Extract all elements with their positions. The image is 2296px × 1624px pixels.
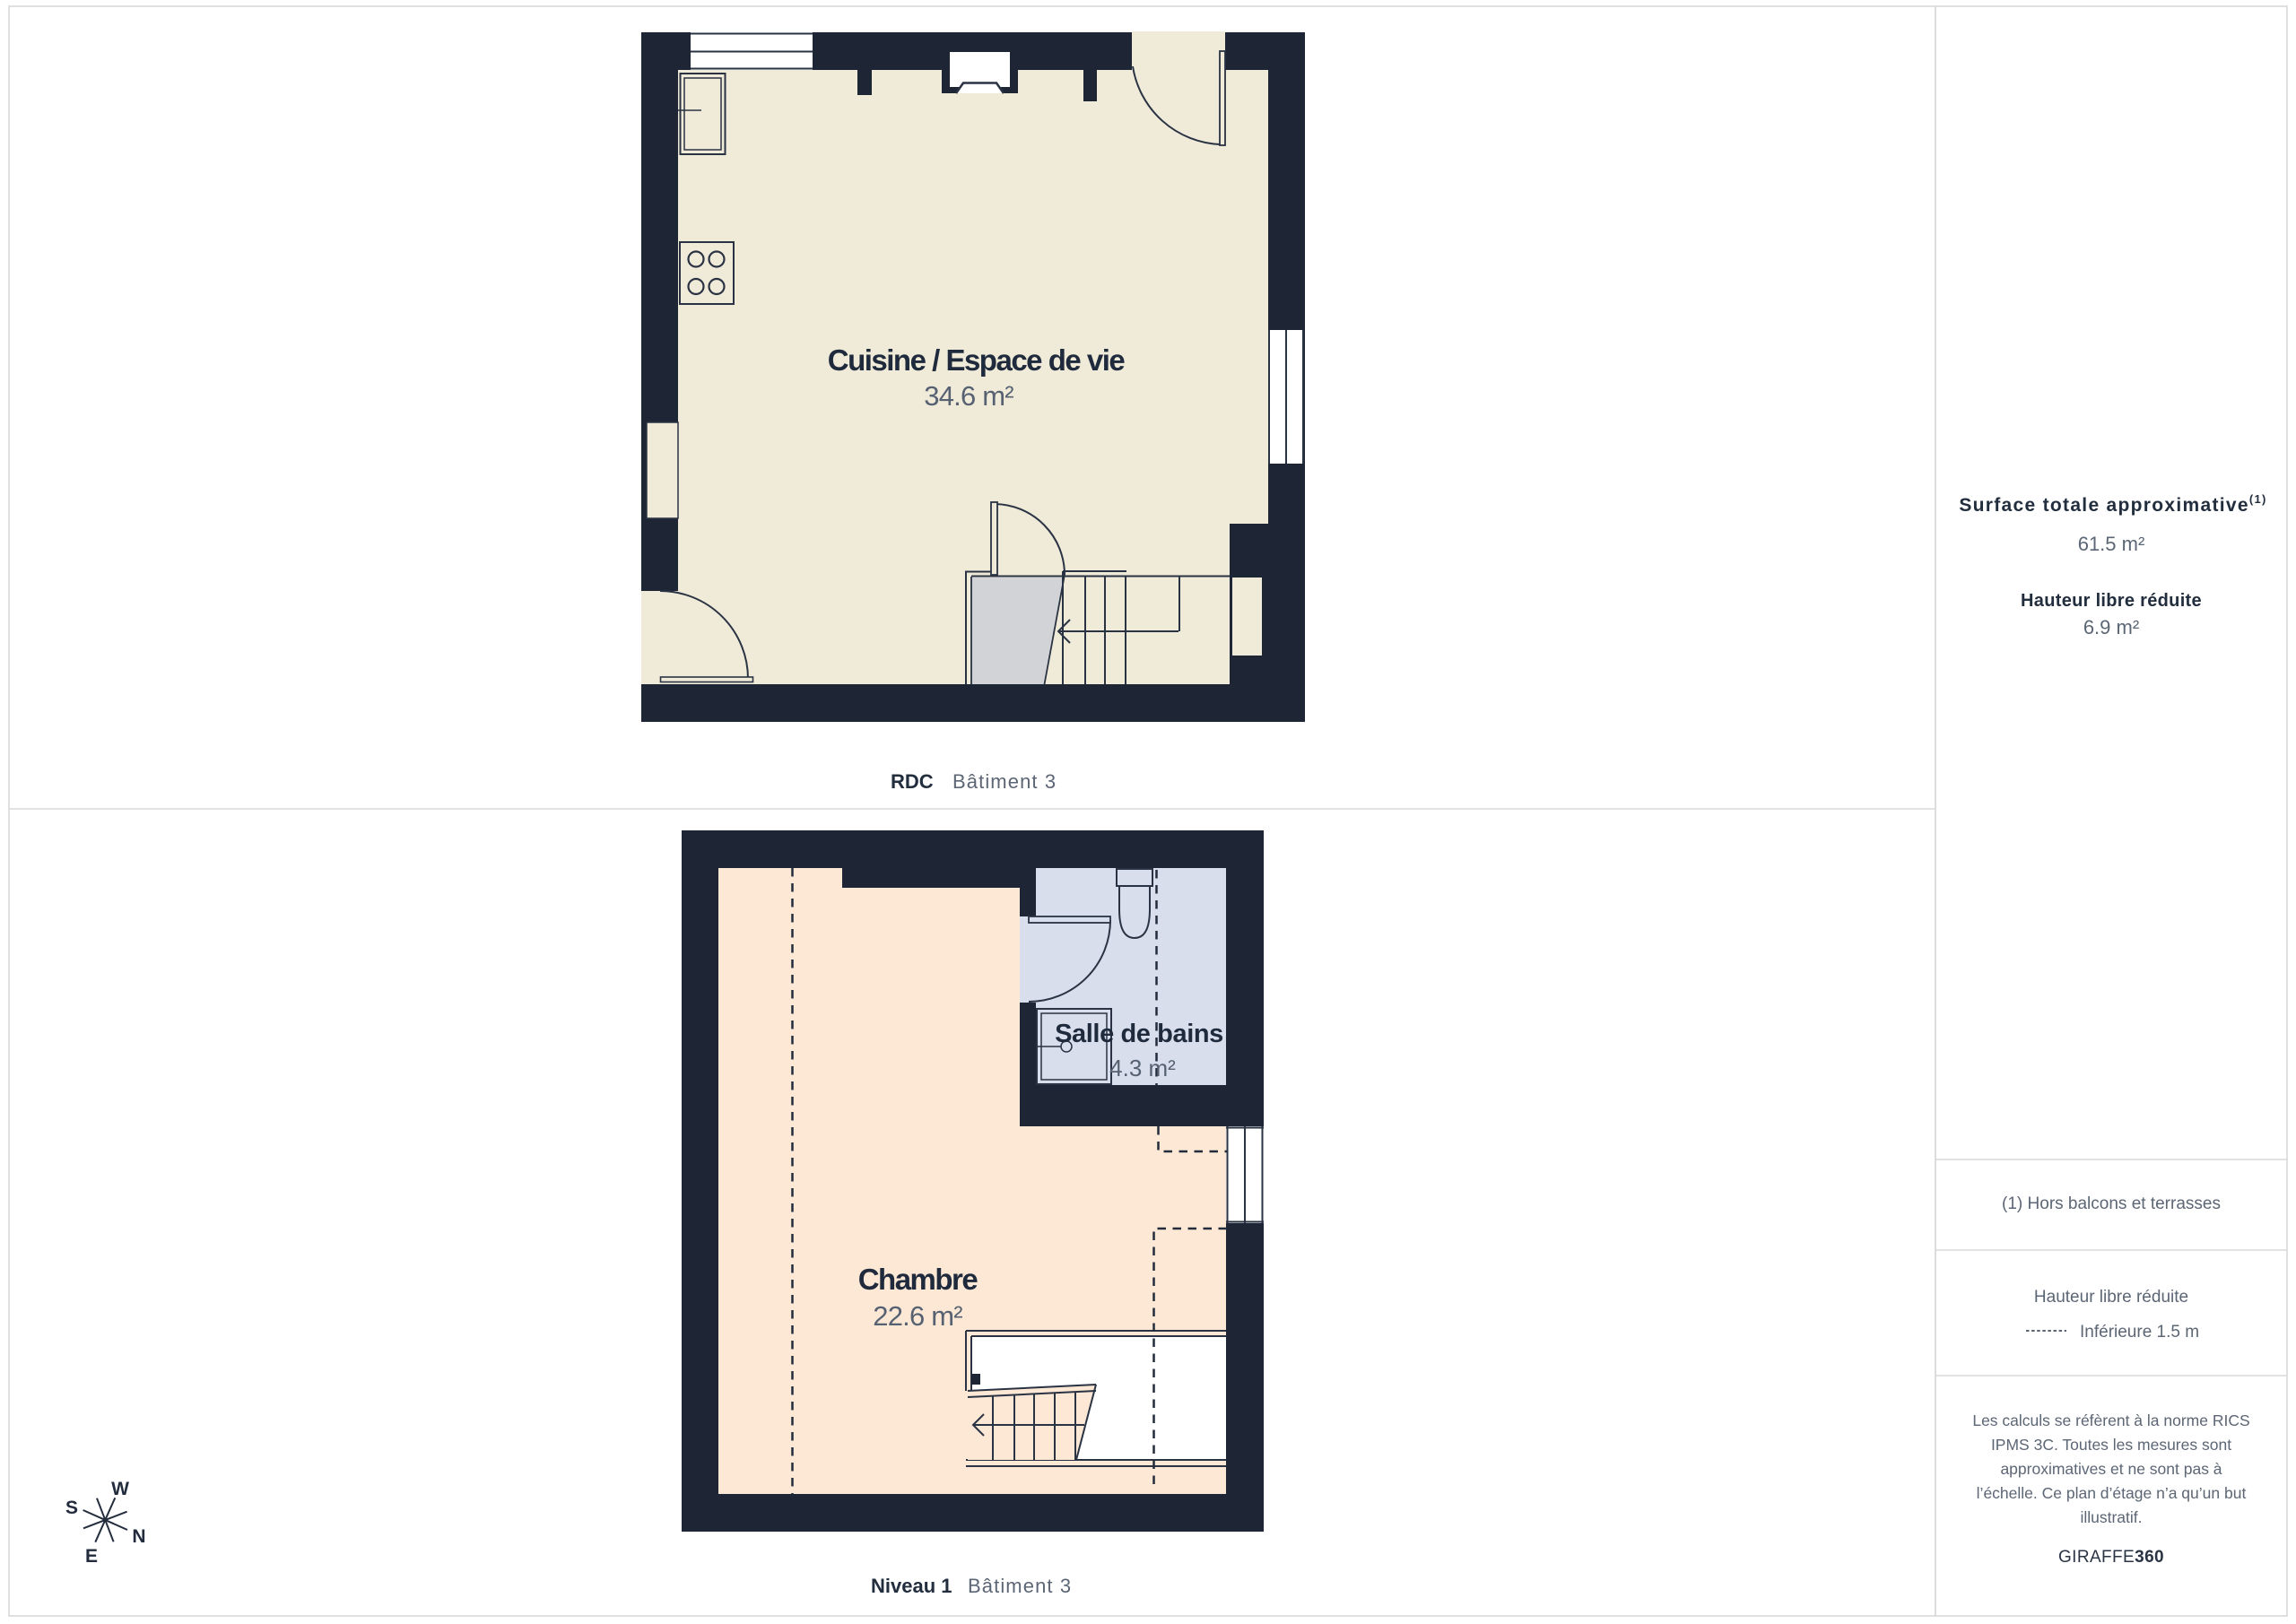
svg-text:illustratif.: illustratif. <box>2080 1508 2142 1526</box>
svg-text:4.3 m²: 4.3 m² <box>1109 1055 1176 1081</box>
svg-text:Chambre: Chambre <box>858 1263 978 1296</box>
svg-text:GIRAFFE360: GIRAFFE360 <box>2058 1548 2164 1567</box>
svg-text:W: W <box>111 1479 129 1499</box>
svg-text:Salle de bains: Salle de bains <box>1055 1020 1223 1048</box>
svg-text:N: N <box>132 1526 145 1547</box>
svg-text:22.6 m²: 22.6 m² <box>873 1300 962 1332</box>
svg-text:IPMS 3C. Toutes les mesures so: IPMS 3C. Toutes les mesures sont <box>1991 1436 2231 1454</box>
svg-text:Bâtiment 3: Bâtiment 3 <box>952 770 1057 793</box>
svg-text:E: E <box>85 1546 98 1567</box>
svg-text:Cuisine / Espace de vie: Cuisine / Espace de vie <box>828 343 1126 377</box>
svg-text:Niveau 1: Niveau 1 <box>871 1575 952 1597</box>
svg-text:Inférieure 1.5 m: Inférieure 1.5 m <box>2080 1323 2199 1342</box>
svg-text:l’échelle. Ce plan d’étage n’a: l’échelle. Ce plan d’étage n’a qu’un but <box>1977 1484 2247 1502</box>
svg-text:Bâtiment 3: Bâtiment 3 <box>968 1575 1072 1597</box>
svg-text:34.6 m²: 34.6 m² <box>924 380 1013 412</box>
svg-text:S: S <box>65 1498 78 1518</box>
svg-text:approximatives et ne sont pas: approximatives et ne sont pas à <box>2000 1460 2222 1478</box>
svg-text:Hauteur libre réduite: Hauteur libre réduite <box>2021 591 2202 611</box>
svg-text:Les calculs se réfèrent à la n: Les calculs se réfèrent à la norme RICS <box>1972 1411 2249 1429</box>
svg-text:61.5 m²: 61.5 m² <box>2078 533 2145 555</box>
svg-text:RDC: RDC <box>891 770 934 793</box>
svg-text:(1) Hors balcons et terrasses: (1) Hors balcons et terrasses <box>2002 1194 2221 1213</box>
svg-text:Surface totale approximative(1: Surface totale approximative(1) <box>1959 492 2266 516</box>
svg-text:Hauteur libre réduite: Hauteur libre réduite <box>2034 1288 2188 1307</box>
svg-text:6.9 m²: 6.9 m² <box>2083 616 2139 638</box>
